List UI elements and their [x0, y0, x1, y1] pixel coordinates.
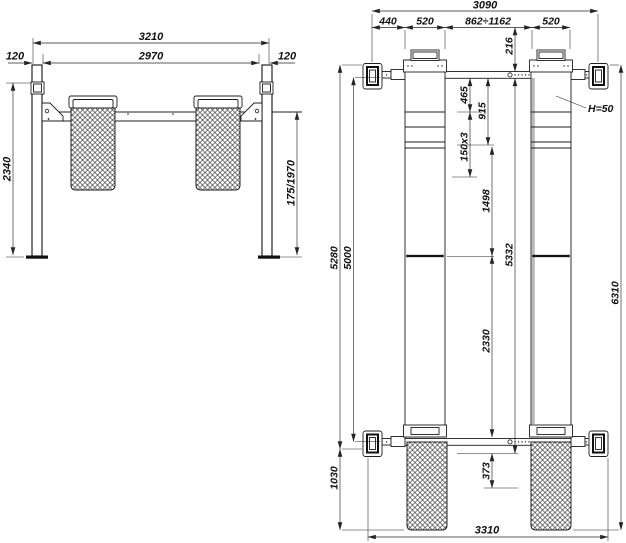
plan-view: H=50 3090 [329, 0, 622, 541]
plan-pad-top-left [363, 64, 382, 90]
front-dimensions: 3210 2970 120 120 2340 175/1970 [2, 31, 303, 257]
dim-plan-seg-440: 440 [378, 16, 397, 28]
front-platform-right [196, 108, 240, 190]
technical-drawing-sheet: 3210 2970 120 120 2340 175/1970 [0, 0, 626, 543]
dim-front-platform-height: 175/1970 [286, 159, 298, 206]
plan-ramp-right [531, 442, 571, 530]
front-runway-rail-right [194, 96, 242, 108]
dim-plan-seg-520-right: 520 [542, 16, 560, 28]
dim-plan-seg-520-left: 520 [416, 16, 434, 28]
front-column-right [258, 65, 280, 259]
dim-plan-6310: 6310 [610, 281, 622, 305]
dim-plan-5332: 5332 [504, 243, 516, 267]
dim-front-column-height: 2340 [2, 156, 14, 182]
dim-front-inner-width: 2970 [138, 51, 164, 63]
plan-runway-right [530, 50, 573, 437]
note-h50-label: H=50 [588, 103, 614, 115]
plan-pad-bottom-left [363, 431, 382, 457]
dim-plan-track-gap: 862÷1162 [465, 16, 511, 28]
dim-plan-total-width: 3090 [473, 0, 498, 12]
plan-runway-left [404, 50, 447, 437]
front-platform-left [71, 108, 115, 190]
dim-plan-3310: 3310 [475, 525, 500, 537]
plan-pad-bottom-right [589, 431, 608, 457]
dim-front-post-width-left: 120 [6, 51, 25, 63]
four-post-lift-drawing: 3210 2970 120 120 2340 175/1970 [0, 0, 626, 543]
dim-plan-216: 216 [504, 37, 516, 56]
dim-plan-465: 465 [459, 86, 471, 105]
front-column-left [26, 65, 48, 259]
dim-plan-1498: 1498 [481, 189, 493, 213]
dim-plan-373: 373 [481, 462, 493, 480]
dim-plan-150x3: 150x3 [459, 132, 471, 161]
dim-plan-915: 915 [477, 102, 489, 120]
dim-front-total-width: 3210 [139, 31, 164, 43]
dim-plan-1030: 1030 [329, 466, 341, 490]
front-view: 3210 2970 120 120 2340 175/1970 [2, 31, 303, 259]
front-runway-rail-left [69, 96, 117, 108]
dim-plan-2330: 2330 [481, 329, 493, 354]
plan-ramp-left [407, 442, 447, 530]
plan-pad-top-right [589, 64, 608, 90]
dim-front-post-width-right: 120 [278, 51, 297, 63]
dim-plan-5280: 5280 [329, 246, 341, 270]
dim-plan-5000: 5000 [342, 246, 354, 270]
